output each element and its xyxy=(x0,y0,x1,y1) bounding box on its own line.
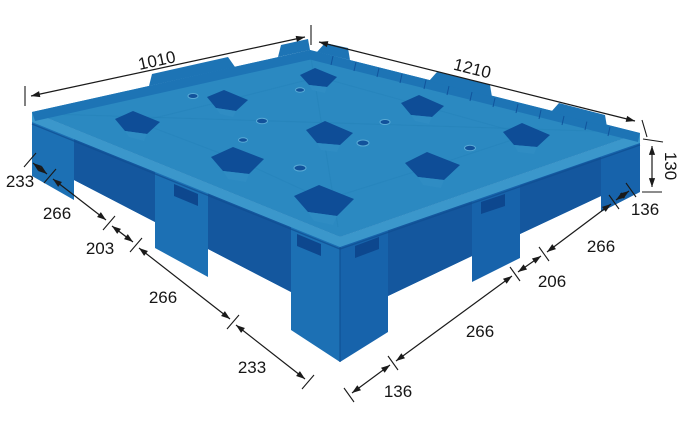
chain-tick xyxy=(344,388,354,402)
chain-tick xyxy=(302,375,314,389)
dim-extension-tick xyxy=(642,120,647,137)
dim-label-left-203: 203 xyxy=(86,239,114,258)
dim-label-left-266a: 266 xyxy=(43,204,71,223)
vent-hole xyxy=(188,94,198,99)
dim-label-right-266a: 266 xyxy=(466,322,494,341)
dim-label-right-136b: 136 xyxy=(631,200,659,219)
chain-tick xyxy=(539,247,549,261)
dim-line-right-206 xyxy=(518,256,541,272)
dim-label-right-206: 206 xyxy=(538,272,566,291)
vent-hole xyxy=(380,120,390,125)
dim-label-left-233a: 233 xyxy=(6,172,34,191)
pallet-illustration xyxy=(32,39,640,362)
dim-extension-tick xyxy=(643,139,663,142)
chain-tick xyxy=(388,356,398,370)
vent-hole xyxy=(296,88,305,92)
dim-label-left-266b: 266 xyxy=(149,288,177,307)
dim-label-right-136a: 136 xyxy=(384,382,412,401)
vent-hole xyxy=(357,140,369,146)
chain-tick xyxy=(227,315,239,329)
chain-tick xyxy=(510,267,520,281)
dim-label-right-266b: 266 xyxy=(587,237,615,256)
diagram-canvas: 1010 1210 130 233 xyxy=(0,0,680,421)
vent-hole xyxy=(465,145,476,151)
dim-line-right-266a xyxy=(396,276,512,361)
dim-height: 130 xyxy=(642,139,680,192)
vent-hole xyxy=(294,165,306,171)
vent-hole xyxy=(257,118,268,124)
pallet-dimension-diagram: 1010 1210 130 233 xyxy=(0,0,680,421)
dim-label-left-233b: 233 xyxy=(238,358,266,377)
chain-tick xyxy=(130,238,142,252)
chain-tick xyxy=(103,216,115,230)
vent-hole xyxy=(239,138,248,142)
dim-line-left-203 xyxy=(112,226,133,242)
dim-label-130: 130 xyxy=(661,152,680,180)
